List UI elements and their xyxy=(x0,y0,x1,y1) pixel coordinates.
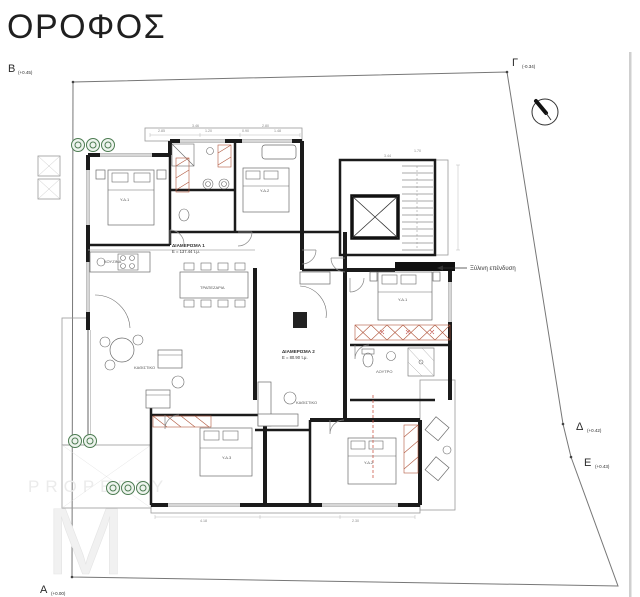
room-label-bedroom-bottom: Υ.Δ.2 xyxy=(364,460,374,465)
marker-Gamma-letter: Γ xyxy=(512,57,518,69)
room-label-dining: ΤΡΑΠΕΖΑΡΙΑ xyxy=(200,285,225,290)
apartment-1-area: Ε = 137.44 τ.μ. xyxy=(172,249,200,254)
watermark-monogram: M xyxy=(46,489,125,595)
fridge xyxy=(293,312,307,328)
dim-4: 1.48 xyxy=(274,129,281,133)
marker-Delta-elevation: (+0.42) xyxy=(587,428,602,433)
dim-7: 3.44 xyxy=(384,154,391,158)
room-label-living2: ΚΑΘΙΣΤΙΚΟ xyxy=(296,400,317,405)
lounge-chairs xyxy=(425,417,451,481)
bed-right xyxy=(370,272,440,320)
page-title: ΟΡΟΦΟΣ xyxy=(7,8,166,46)
dim-6: 1.70 xyxy=(414,149,421,153)
bath-right xyxy=(362,348,434,376)
marker-B: Β (+0.45) xyxy=(8,63,33,75)
room-label-bedroom3: Υ.Δ.3 xyxy=(222,455,232,460)
marker-Gamma-elevation: (-0.34) xyxy=(522,64,536,69)
dim-1: 2.85 xyxy=(158,129,165,133)
room-label-bedroom-right: Υ.Δ.1 xyxy=(398,297,408,302)
dim-9: 4.18 xyxy=(200,519,207,523)
watermark: PROPERTY M xyxy=(28,477,169,595)
room-label-bedroom1: Υ.Δ.1 xyxy=(120,197,130,202)
kitchen-apt2 xyxy=(293,272,330,328)
room-label-kitchen: ΚΟΥΖΙΝΑ xyxy=(104,259,122,264)
north-arrow-icon xyxy=(532,99,558,125)
room-label-living1: ΚΑΘΙΣΤΙΚΟ xyxy=(134,365,155,370)
apartment-1-label: ΔΙΑΜΕΡΙΣΜΑ 1 Ε = 137.44 τ.μ. xyxy=(172,243,205,254)
dim-0: 3.46 xyxy=(192,124,199,128)
living-apt2 xyxy=(258,382,298,426)
marker-B-elevation: (+0.45) xyxy=(18,70,33,75)
marker-Epsilon: Ε (+0.43) xyxy=(584,457,610,469)
marker-Epsilon-letter: Ε xyxy=(584,457,591,469)
dim-5: 2.80 xyxy=(262,124,269,128)
marker-Gamma: Γ (-0.34) xyxy=(512,57,536,69)
bed-topleft xyxy=(96,170,166,225)
marker-Delta-letter: Δ xyxy=(576,421,584,433)
apartment-1-name: ΔΙΑΜΕΡΙΣΜΑ 1 xyxy=(172,243,205,248)
room-label-bedroom2: Υ.Δ.2 xyxy=(260,188,270,193)
stair-treads xyxy=(402,166,433,250)
stair-core xyxy=(340,160,435,255)
annotation-text: Ξύλινη επένδυση xyxy=(470,265,516,272)
dim-8: 2.30 xyxy=(352,519,359,523)
marker-Epsilon-elevation: (+0.43) xyxy=(595,464,610,469)
apartment-2-label: ΔΙΑΜΕΡΙΣΜΑ 2 Ε = 80.90 τ.μ. xyxy=(282,349,315,360)
bed-bottomleft xyxy=(200,428,252,476)
marker-B-letter: Β xyxy=(8,63,15,75)
room-label-bath: ΛΟΥΤΡΟ xyxy=(376,369,392,374)
apartment-2-name: ΔΙΑΜΕΡΙΣΜΑ 2 xyxy=(282,349,315,354)
marker-Delta: Δ (+0.42) xyxy=(576,421,602,433)
apartment-2-area: Ε = 80.90 τ.μ. xyxy=(282,355,308,360)
dim-3: 0.90 xyxy=(242,129,249,133)
page-edge-line xyxy=(629,52,632,597)
clad-wall xyxy=(395,262,455,271)
floor-plan-canvas: ΟΡΟΦΟΣ Β (+0.45) Γ (-0.34) Δ (+0.42) Ε (… xyxy=(0,0,640,597)
living-apt1 xyxy=(100,335,184,408)
dim-2: 1.20 xyxy=(205,129,212,133)
